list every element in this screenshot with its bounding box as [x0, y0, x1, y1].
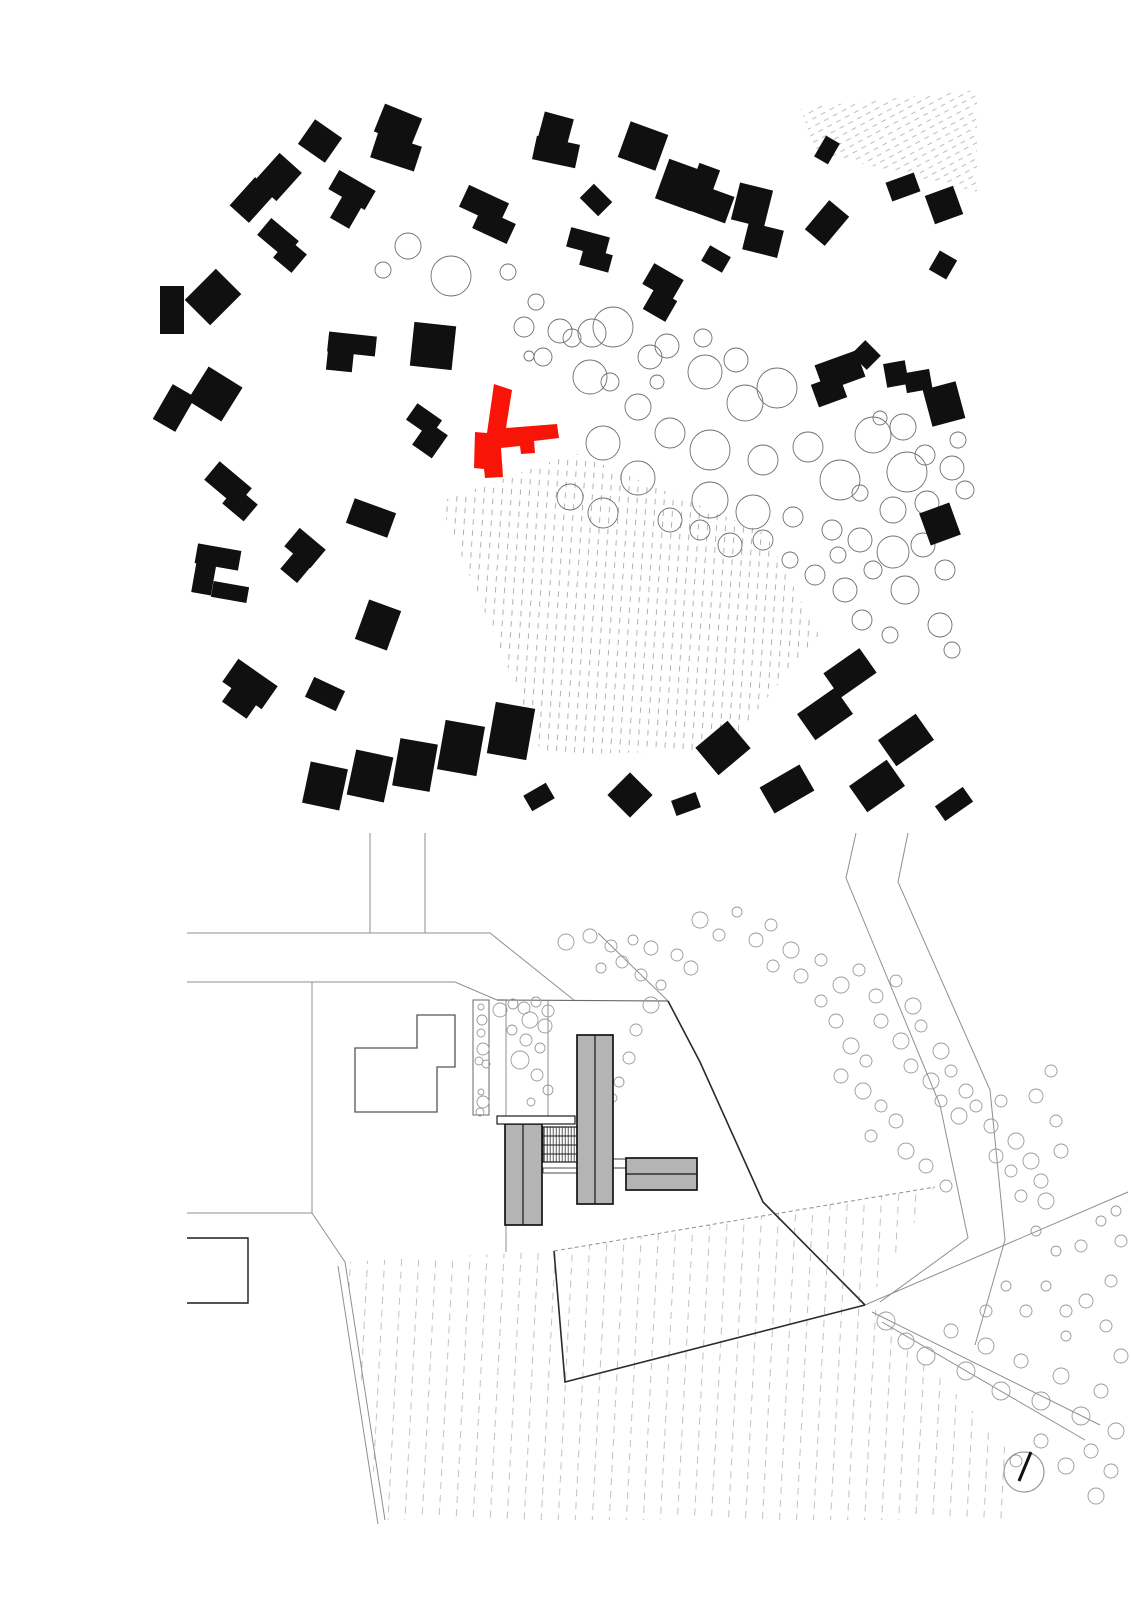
building-footprint: [211, 581, 249, 603]
tree-circle: [520, 1034, 532, 1046]
tree-circle: [1111, 1206, 1121, 1216]
road-line: [187, 982, 497, 1000]
tree-circle: [950, 432, 966, 448]
tree-circle: [815, 995, 827, 1007]
tree-circle: [852, 610, 872, 630]
tree-circle: [643, 997, 659, 1013]
building-footprint: [532, 136, 580, 169]
building-footprint: [797, 688, 853, 741]
tree-circle: [793, 432, 823, 462]
tree-circle: [477, 1096, 489, 1108]
tree-circle: [1115, 1235, 1127, 1247]
tree-circle: [893, 1033, 909, 1049]
tree-circle: [757, 368, 797, 408]
tree-circle: [829, 1014, 843, 1028]
tree-circle: [1054, 1144, 1068, 1158]
tree-circle: [794, 969, 808, 983]
tree-circle: [1079, 1294, 1093, 1308]
building-footprint: [298, 119, 342, 163]
tree-circle: [522, 1012, 538, 1028]
detailed-site-plan: [187, 833, 1128, 1524]
tree-circle: [1114, 1349, 1128, 1363]
tree-circle: [616, 956, 628, 968]
tree-circle: [923, 1073, 939, 1089]
tree-circle: [905, 998, 921, 1014]
tree-circle: [1088, 1488, 1104, 1504]
tree-circle: [655, 334, 679, 358]
tree-circle: [623, 1052, 635, 1064]
tree-circle: [736, 495, 770, 529]
building-footprint: [935, 787, 973, 821]
tree-circle: [531, 997, 541, 1007]
tree-circle: [1061, 1331, 1071, 1341]
tree-circle: [891, 576, 919, 604]
tree-circle: [601, 373, 619, 391]
building-footprint: [731, 182, 773, 227]
tree-circle: [915, 1020, 927, 1032]
tree-circle: [833, 977, 849, 993]
tree-circle: [1053, 1368, 1069, 1384]
tree-circle: [848, 528, 872, 552]
tree-circle: [1029, 1089, 1043, 1103]
tree-circle: [822, 520, 842, 540]
tree-circle: [935, 1095, 947, 1107]
tree-circle: [984, 1119, 998, 1133]
tree-circle: [1058, 1458, 1074, 1474]
tree-circle: [1034, 1174, 1048, 1188]
building-footprint: [187, 366, 242, 421]
tree-circle: [1051, 1246, 1061, 1256]
tree-circle: [548, 319, 572, 343]
tree-circle: [882, 627, 898, 643]
tree-circle: [732, 907, 742, 917]
building-footprint: [579, 247, 613, 272]
proposed-buildings: [505, 1035, 697, 1225]
tree-circle: [727, 385, 763, 421]
tree-circle: [1020, 1305, 1032, 1317]
tree-circle: [1105, 1275, 1117, 1287]
tree-circle: [558, 934, 574, 950]
tree-circle: [1034, 1434, 1048, 1448]
building-footprint: [410, 322, 456, 370]
tree-circle: [970, 1100, 982, 1112]
tree-circle: [898, 1143, 914, 1159]
tree-circle: [514, 317, 534, 337]
tree-circle: [1108, 1423, 1124, 1439]
tree-circle: [1094, 1384, 1108, 1398]
tree-circle: [864, 561, 882, 579]
road-line: [598, 933, 668, 1001]
tree-circle: [684, 961, 698, 975]
tree-circle: [713, 929, 725, 941]
tree-circle: [940, 456, 964, 480]
tree-circle: [860, 1055, 872, 1067]
building-footprint: [346, 498, 396, 537]
tree-circle: [724, 348, 748, 372]
tree-circle: [945, 1065, 957, 1077]
tree-circle: [889, 1114, 903, 1128]
tree-circle: [855, 1083, 871, 1099]
tree-circle: [919, 1159, 933, 1173]
tree-circle: [694, 329, 712, 347]
tree-circle: [1041, 1281, 1051, 1291]
open-rectangle-structure: [187, 1238, 248, 1303]
tree-circle: [748, 445, 778, 475]
tree-circle: [880, 497, 906, 523]
tree-circle: [538, 1019, 552, 1033]
north-arrow: [1004, 1452, 1044, 1492]
tree-circle: [656, 980, 666, 990]
building-footprint: [392, 738, 438, 792]
north-arrow-needle: [1019, 1452, 1031, 1481]
tree-circle: [477, 1043, 489, 1055]
tree-circle: [904, 1059, 918, 1073]
tree-circle: [531, 1069, 543, 1081]
tree-circle: [1015, 1190, 1027, 1202]
tree-circle: [875, 1100, 887, 1112]
tree-circle: [583, 929, 597, 943]
tree-circle: [834, 1069, 848, 1083]
site-north-boundary: [497, 1000, 668, 1001]
tree-circle: [1084, 1444, 1098, 1458]
tree-circle: [527, 1098, 535, 1106]
building-footprint: [580, 184, 613, 217]
site-plans-figure: [0, 0, 1131, 1600]
tree-circle: [951, 1108, 967, 1124]
building-footprint: [929, 250, 957, 279]
tree-circle: [959, 1084, 973, 1098]
tree-circle: [692, 912, 708, 928]
building-footprint: [185, 269, 242, 326]
building-footprint: [760, 765, 815, 814]
tree-circle: [477, 1029, 485, 1037]
tree-circle: [978, 1338, 994, 1354]
tree-circle: [815, 954, 827, 966]
tree-circle: [1023, 1153, 1039, 1169]
tree-circle: [596, 963, 606, 973]
tree-circle: [830, 547, 846, 563]
tree-circle: [767, 960, 779, 972]
building-footprint: [805, 200, 849, 246]
tree-circle: [843, 1038, 859, 1054]
tree-circle: [1075, 1240, 1087, 1252]
building-footprint: [153, 384, 196, 432]
tree-circle: [935, 560, 955, 580]
tree-circle: [890, 414, 916, 440]
tree-circle: [877, 536, 909, 568]
tree-circle: [688, 355, 722, 389]
tree-circle: [865, 1130, 877, 1142]
tree-circle: [1008, 1133, 1024, 1149]
building-footprint: [885, 172, 920, 201]
tree-circle: [478, 1004, 484, 1010]
tree-circle: [940, 1180, 952, 1192]
tree-circle: [395, 233, 421, 259]
tree-circle: [1005, 1165, 1017, 1177]
tree-circle: [507, 1025, 517, 1035]
tree-circle: [586, 426, 620, 460]
architectural-sheet: [0, 0, 1131, 1600]
tree-circle: [477, 1015, 487, 1025]
tree-circle: [573, 360, 607, 394]
site-plan-drawing: [0, 0, 1131, 1600]
building-footprint: [925, 186, 963, 224]
building-footprint: [607, 772, 652, 817]
tree-circle: [375, 262, 391, 278]
building-footprint: [618, 121, 669, 170]
road-line: [187, 933, 575, 1001]
tree-circle: [614, 1077, 624, 1087]
tree-circle: [805, 565, 825, 585]
tree-circle: [853, 964, 865, 976]
tree-circle: [887, 452, 927, 492]
tree-circle: [493, 1003, 507, 1017]
tree-circle: [1060, 1305, 1072, 1317]
building-footprint: [487, 702, 535, 760]
tree-circle: [1038, 1193, 1054, 1209]
tree-circle: [765, 919, 777, 931]
building-footprint: [326, 348, 354, 373]
tree-circle: [1032, 1392, 1050, 1410]
tree-circle: [890, 975, 902, 987]
tree-circle: [1001, 1281, 1011, 1291]
tree-circle: [528, 294, 544, 310]
building-footprint: [355, 599, 401, 650]
tree-circle: [650, 375, 664, 389]
tree-circle: [630, 1024, 642, 1036]
tree-circle: [1045, 1065, 1057, 1077]
tree-circle: [535, 1043, 545, 1053]
tree-circle: [783, 942, 799, 958]
tree-circle: [534, 348, 552, 366]
tree-circle: [1096, 1216, 1106, 1226]
tree-circle: [478, 1089, 484, 1095]
tree-circle: [690, 430, 730, 470]
tree-circle: [928, 613, 952, 637]
tree-circle: [995, 1095, 1007, 1107]
tree-circle: [1100, 1320, 1112, 1332]
road-line: [312, 1213, 345, 1262]
tree-circle: [944, 1324, 958, 1338]
tree-circle: [500, 264, 516, 280]
tree-circle: [511, 1051, 529, 1069]
building-footprint: [849, 760, 905, 813]
building-footprint: [523, 783, 555, 812]
tree-circle: [852, 485, 868, 501]
tree-circle: [638, 345, 662, 369]
tree-circle: [1104, 1464, 1118, 1478]
building-footprint: [305, 677, 345, 711]
tree-circle: [820, 460, 860, 500]
tree-circle: [956, 481, 974, 499]
tree-circle: [628, 935, 638, 945]
tree-circle: [783, 507, 803, 527]
stair-lower-landing: [543, 1168, 577, 1173]
tree-circle: [874, 1014, 888, 1028]
tree-circle: [869, 989, 883, 1003]
tree-circle: [524, 351, 534, 361]
tree-circle: [644, 941, 658, 955]
building-footprint: [160, 286, 184, 334]
tree-circle: [671, 949, 683, 961]
tree-circle: [431, 256, 471, 296]
tree-circle: [933, 1043, 949, 1059]
building-footprint: [919, 503, 961, 546]
neighbor-house-outline: [355, 1015, 455, 1112]
tree-circle: [782, 552, 798, 568]
tree-circle: [944, 642, 960, 658]
building-footprint: [742, 222, 784, 258]
building-footprint: [671, 792, 701, 816]
building-footprint: [437, 720, 485, 776]
tree-circle: [578, 319, 606, 347]
tree-circle: [655, 418, 685, 448]
tree-circle: [593, 307, 633, 347]
tree-circle: [1050, 1115, 1062, 1127]
tree-circle: [1014, 1354, 1028, 1368]
building-footprint: [701, 245, 731, 273]
building-footprint: [347, 750, 394, 803]
tree-circle: [749, 933, 763, 947]
tree-circle: [833, 578, 857, 602]
building-connector: [613, 1159, 626, 1168]
entrance-canopy: [497, 1116, 575, 1124]
building-footprint: [302, 762, 348, 811]
tree-circle: [625, 394, 651, 420]
building-footprint: [878, 714, 934, 767]
figure-ground-site-plan: [153, 90, 977, 821]
